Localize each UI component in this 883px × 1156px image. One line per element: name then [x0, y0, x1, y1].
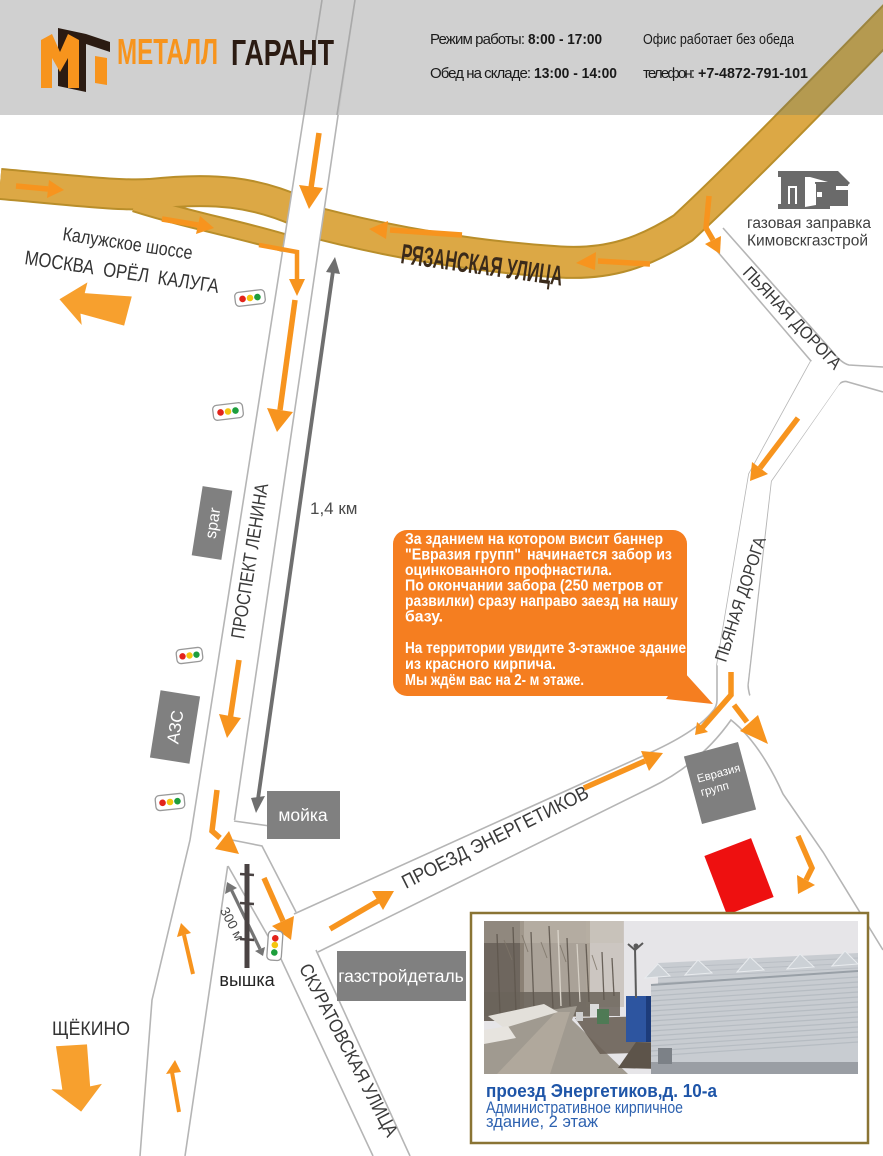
- svg-text:начинается забор из: начинается забор из: [527, 547, 672, 564]
- svg-text:газовая заправка: газовая заправка: [747, 215, 871, 232]
- svg-text:По окончании забора (250 метро: По окончании забора (250 метров от: [405, 578, 663, 595]
- svg-text:развилки) сразу направо заезд: развилки) сразу направо заезд на нашу: [405, 593, 678, 610]
- svg-text:+7-4872-791-101: +7-4872-791-101: [698, 65, 808, 82]
- svg-text:из красного кирпича.: из красного кирпича.: [405, 656, 556, 673]
- svg-text:Мы ждём вас на 2- м этаже.: Мы ждём вас на 2- м этаже.: [405, 672, 584, 689]
- svg-text:8:00 - 17:00: 8:00 - 17:00: [528, 31, 602, 48]
- svg-text:газстройдеталь: газстройдеталь: [338, 966, 464, 986]
- svg-text:ГАРАНТ: ГАРАНТ: [231, 32, 334, 73]
- svg-text:ЩЁКИНО: ЩЁКИНО: [52, 1018, 130, 1040]
- svg-text:Обед на складе:: Обед на складе:: [430, 65, 531, 82]
- svg-text:"Евразия групп": "Евразия групп": [405, 547, 521, 564]
- svg-text:13:00 - 14:00: 13:00 - 14:00: [534, 65, 617, 82]
- svg-text:вышка: вышка: [219, 970, 275, 990]
- svg-text:оцинкованного профнастила.: оцинкованного профнастила.: [405, 562, 612, 579]
- svg-text:МЕТАЛЛ: МЕТАЛЛ: [117, 31, 218, 72]
- svg-text:проезд Энергетиков,д. 10-а: проезд Энергетиков,д. 10-а: [486, 1080, 718, 1101]
- svg-text:Режим работы:: Режим работы:: [430, 31, 525, 48]
- svg-text:Офис работает без обеда: Офис работает без обеда: [643, 31, 795, 48]
- svg-text:Кимовскгазстрой: Кимовскгазстрой: [747, 233, 868, 250]
- svg-text:За зданием на котором висит ба: За зданием на котором висит баннер: [405, 531, 663, 548]
- svg-text:телефон:: телефон:: [643, 65, 695, 82]
- svg-text:На территории увидите 3-этажно: На территории увидите 3-этажное здание: [405, 640, 686, 657]
- svg-text:базу.: базу.: [405, 609, 443, 626]
- svg-text:1,4 км: 1,4 км: [310, 499, 357, 518]
- svg-text:мойка: мойка: [278, 805, 328, 825]
- svg-text:здание, 2 этаж: здание, 2 этаж: [486, 1113, 598, 1131]
